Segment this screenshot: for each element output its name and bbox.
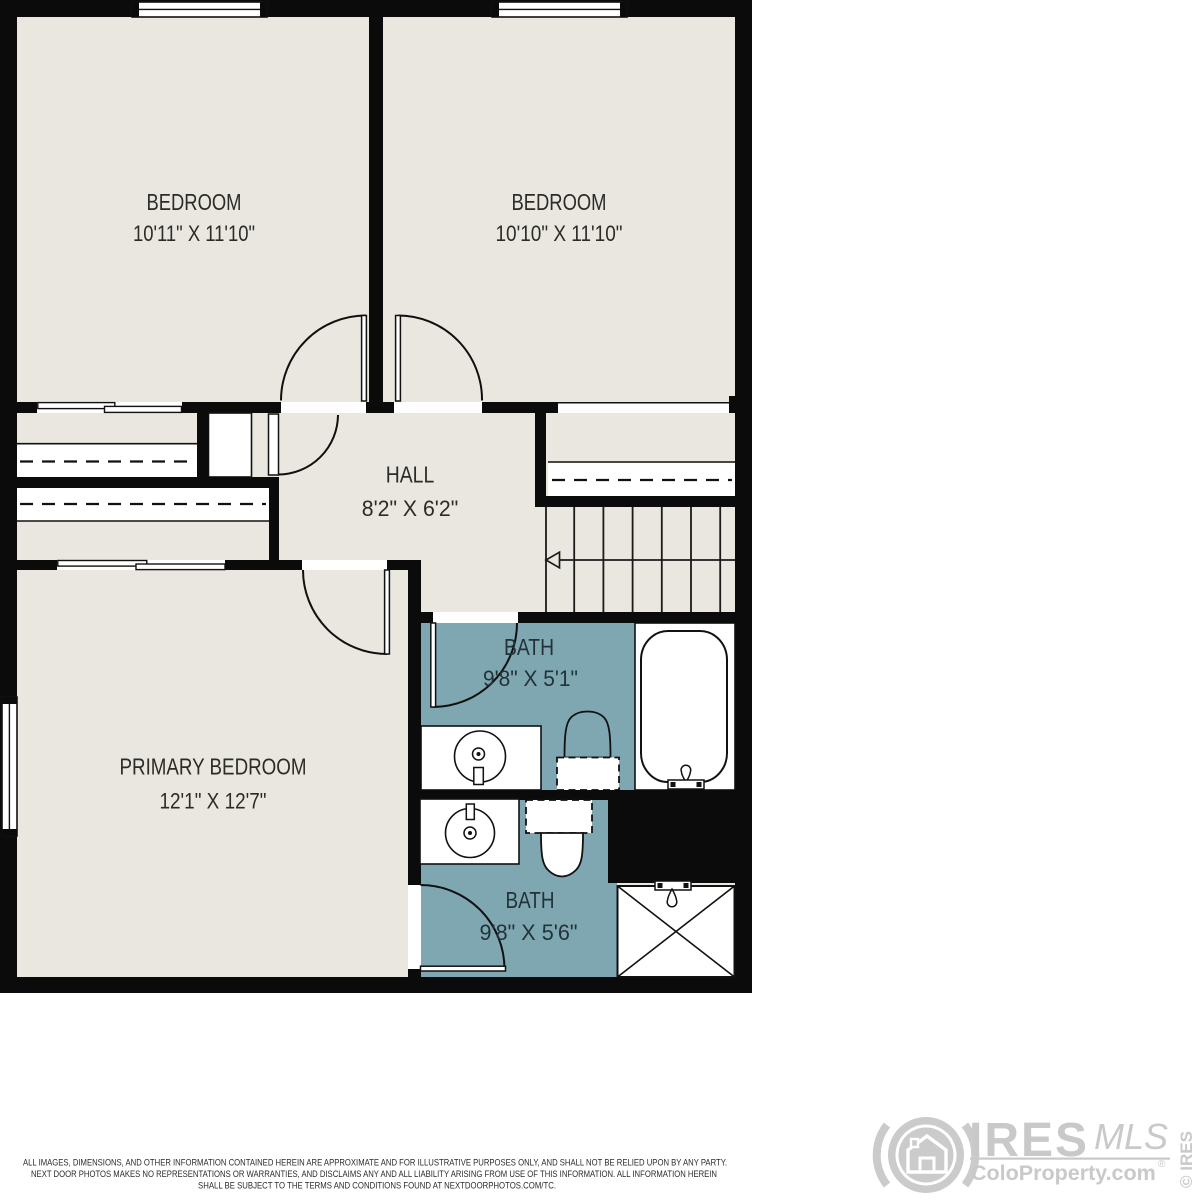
svg-text:BEDROOM: BEDROOM bbox=[512, 189, 607, 215]
svg-text:© IRES: © IRES bbox=[1177, 1131, 1196, 1188]
svg-text:NEXT DOOR PHOTOS MAKES NO REPR: NEXT DOOR PHOTOS MAKES NO REPRESENTATION… bbox=[31, 1169, 717, 1180]
svg-text:BEDROOM: BEDROOM bbox=[147, 189, 242, 215]
svg-text:ALL IMAGES, DIMENSIONS, AND OT: ALL IMAGES, DIMENSIONS, AND OTHER INFORM… bbox=[23, 1158, 727, 1169]
svg-text:BATH: BATH bbox=[504, 634, 554, 660]
svg-text:HALL: HALL bbox=[386, 462, 435, 488]
svg-text:10'11" X 11'10": 10'11" X 11'10" bbox=[133, 221, 255, 246]
svg-text:PRIMARY BEDROOM: PRIMARY BEDROOM bbox=[120, 754, 307, 780]
svg-text:9'8" X 5'1": 9'8" X 5'1" bbox=[483, 666, 578, 691]
svg-text:12'1" X 12'7": 12'1" X 12'7" bbox=[160, 789, 267, 814]
svg-text:BATH: BATH bbox=[506, 887, 555, 913]
svg-text:ColoProperty.com: ColoProperty.com bbox=[971, 1161, 1156, 1185]
svg-text:MLS: MLS bbox=[1094, 1116, 1168, 1157]
svg-text:SHALL BE SUBJECT TO THE TERMS: SHALL BE SUBJECT TO THE TERMS AND CONDIT… bbox=[198, 1180, 556, 1191]
svg-text:8'2" X 6'2": 8'2" X 6'2" bbox=[362, 496, 459, 521]
svg-text:10'10" X 11'10": 10'10" X 11'10" bbox=[496, 221, 623, 246]
svg-text:®: ® bbox=[1158, 1159, 1166, 1170]
svg-text:9'8" X 5'6": 9'8" X 5'6" bbox=[480, 920, 578, 945]
